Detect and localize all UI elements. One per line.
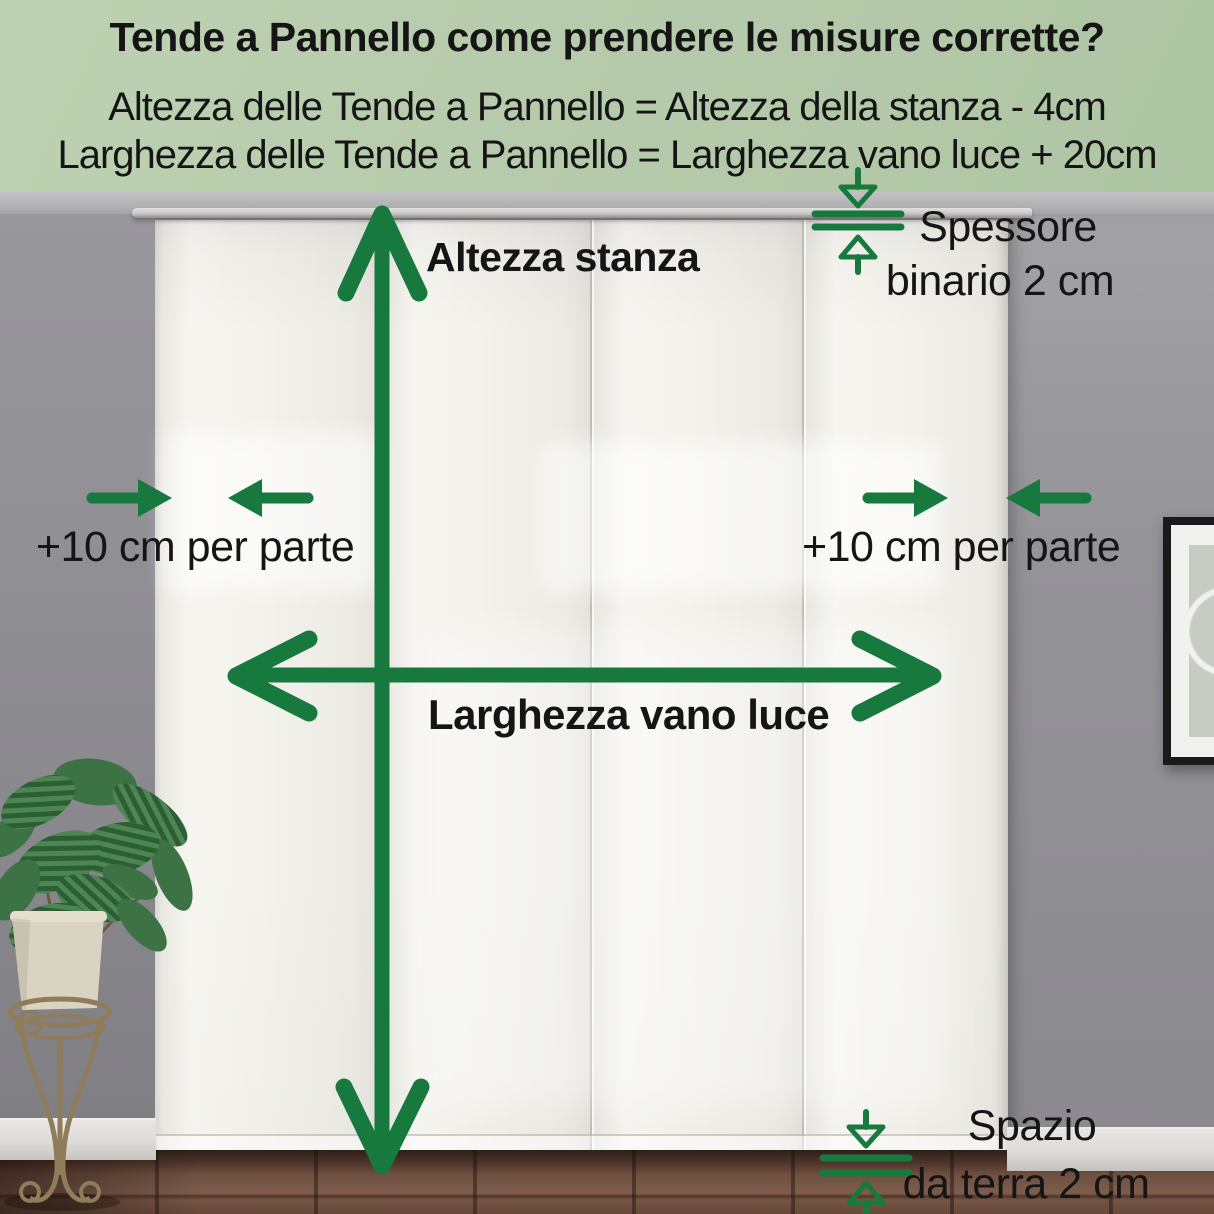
rail-thickness-label-line1: Spessore	[919, 203, 1097, 252]
framed-art	[1189, 545, 1214, 737]
left-margin-label: +10 cm per parte	[36, 523, 354, 572]
rail-thickness-label-line2: binario 2 cm	[886, 257, 1114, 306]
floor-gap-label-line2: da terra 2 cm	[903, 1160, 1150, 1209]
plant-stand	[10, 999, 110, 1201]
page-title: Tende a Pannello come prendere le misure…	[0, 14, 1214, 61]
potted-plant	[0, 740, 200, 1214]
picture-frame	[1163, 517, 1214, 765]
panel-curtains	[155, 220, 1008, 1152]
formula-width: Larghezza delle Tende a Pannello = Largh…	[0, 133, 1214, 178]
header: Tende a Pannello come prendere le misure…	[0, 0, 1214, 192]
room-height-label: Altezza stanza	[426, 234, 699, 281]
plant-pot	[10, 911, 107, 1010]
floor-gap-label-line1: Spazio	[968, 1102, 1096, 1151]
formula-height: Altezza delle Tende a Pannello = Altezza…	[0, 85, 1214, 130]
curtain-rail	[132, 208, 1032, 218]
right-margin-label: +10 cm per parte	[802, 523, 1120, 572]
opening-width-label: Larghezza vano luce	[428, 691, 829, 739]
measurement-infographic: Tende a Pannello come prendere le misure…	[0, 0, 1214, 1214]
